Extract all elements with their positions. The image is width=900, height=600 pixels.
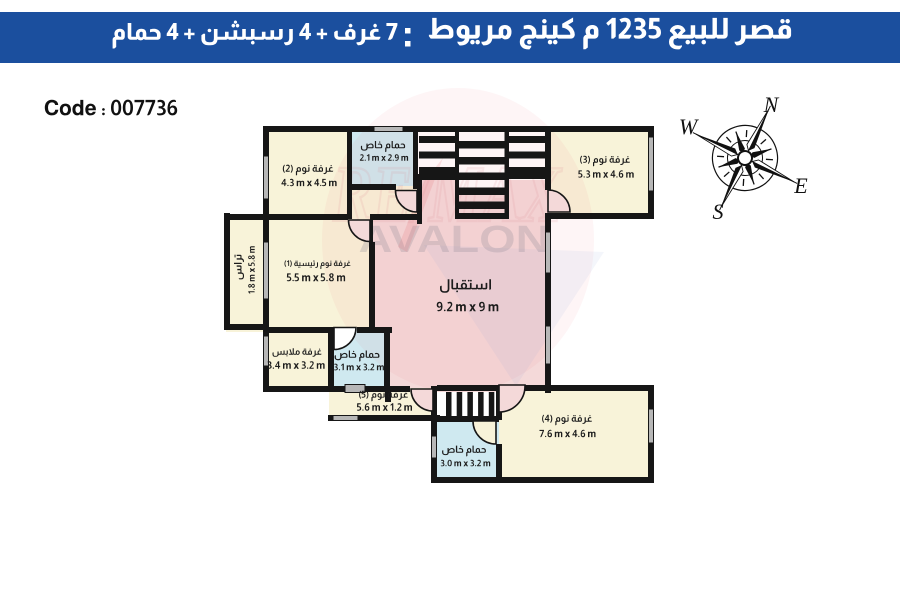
svg-text:N: N <box>763 92 780 117</box>
svg-text:W: W <box>679 114 699 139</box>
svg-text:AVALON: AVALON <box>359 219 550 261</box>
svg-text:S: S <box>713 199 724 224</box>
svg-text:E: E <box>793 173 808 198</box>
